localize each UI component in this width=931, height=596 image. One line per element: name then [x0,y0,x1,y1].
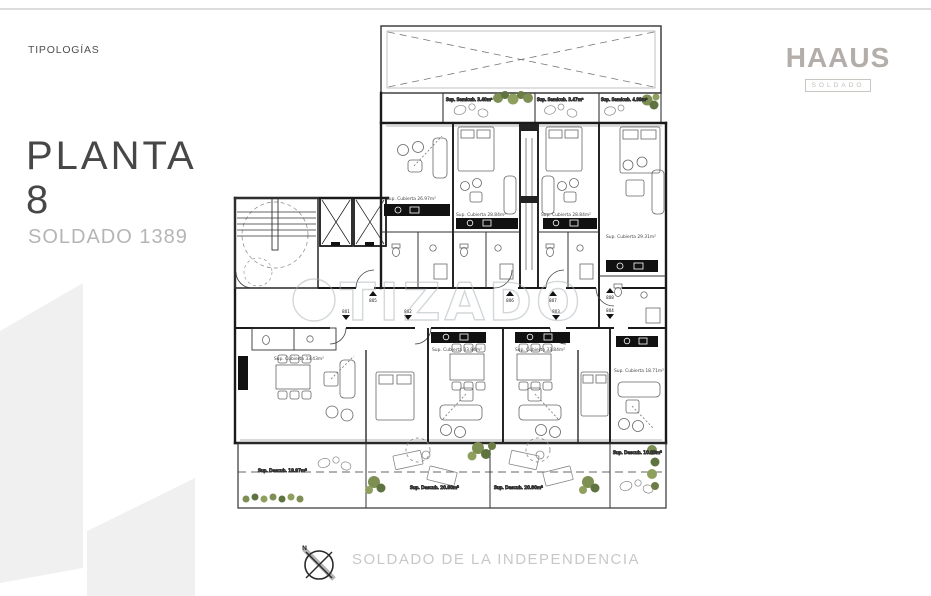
area-label: Sup. Cubierta 33.84m² [432,347,482,353]
stair-core [235,198,318,288]
sofa [519,405,561,420]
brand-badge: SOLDADO [805,79,872,92]
door-arc [236,272,252,288]
brand-logo: HAAUS [783,42,893,74]
brand-block: HAAUS SOLDADO [783,42,893,92]
area-label: Sup. Cubierta 18.71m² [614,368,664,374]
unit-center-right: Sup. Cubierta 33.84m² [515,332,608,438]
kitchen-counter [515,332,570,343]
area-label: Sup. Cubierta 29.31m² [606,234,656,240]
svg-text:808: 808 [606,295,614,300]
typology-sheet: TIPOLOGÍAS PLANTA 8 SOLDADO 1389 HAAUS S… [0,0,931,596]
svg-text:804: 804 [606,308,614,313]
studio-b: Sup. Cubierta 28.84m² [456,127,518,229]
area-label: Sup. Cubierta 28.84m² [541,212,591,218]
compass-north-label: N [302,545,307,552]
sofa [440,405,482,420]
decor-chevron-large [0,283,83,583]
dining-table [450,354,484,380]
unit-left: Sup. Cubierta 33.43m² [238,328,414,421]
plan-subtitle: SOLDADO 1389 [28,226,188,249]
kitchen-counter [431,332,486,343]
bed [620,127,660,173]
area-label: Sup. Semicub. 3.47m² [537,97,584,102]
decor-chevron-small [87,478,195,596]
unit-partitions-bottom [235,328,666,443]
studio-a: Sup. Cubierta 26.97m² [384,136,450,216]
watermark-text: TIZADO [340,273,584,333]
unit-center-left: Sup. Cubierta 33.84m² [431,332,486,438]
dining-table [517,354,551,380]
kitchen-counter [384,204,450,216]
area-label: Sup. Cubierta 26.97m² [386,196,436,202]
compass-icon: N [296,541,342,587]
studio-c: Sup. Cubierta 28.84m² [541,127,597,229]
dining-table [276,365,310,389]
area-label: Sup. Descub. 19.97m² [258,468,307,474]
section-label: TIPOLOGÍAS [28,44,100,56]
bed [581,372,608,416]
area-label: Sup. Cubierta 33.43m² [274,356,324,362]
area-label: Sup. Descub. 20.80m² [410,485,459,491]
plan-title-line2: 8 [26,178,197,222]
elevator-shaft [320,198,386,246]
balcony-top: Sup. Semicub. 3.40m² Sup. Semicub. 3.47m… [443,91,661,123]
floor-plan-drawing: Sup. Semicub. 3.40m² Sup. Semicub. 3.47m… [228,20,672,514]
watermark: TIZADO [293,273,584,333]
studio-d: Sup. Cubierta 29.31m² [606,127,664,272]
plan-title: PLANTA 8 [26,134,197,222]
sofa [652,170,664,214]
sofa [618,382,660,397]
area-label: Sup. Cubierta 33.84m² [515,347,565,353]
street-name: SOLDADO DE LA INDEPENDENCIA [352,551,640,568]
top-divider [0,8,931,10]
bed [546,127,582,171]
kitchen-counter [606,260,658,272]
service-shaft [521,124,537,270]
floor-plan: Sup. Semicub. 3.40m² Sup. Semicub. 3.47m… [228,20,672,514]
unit-right-studio: Sup. Cubierta 18.71m² [614,336,664,432]
sofa [542,176,554,214]
sofa [340,360,355,398]
area-label: Sup. Descub. 20.80m² [494,485,543,491]
area-label: Sup. Cubierta 28.84m² [456,212,506,218]
bed [376,372,414,420]
area-label: Sup. Semicub. 4.99m² [601,97,648,102]
sofa [504,176,516,214]
void-roof [381,26,661,93]
kitchen-counter [616,336,658,347]
kitchen-counter [238,356,248,390]
terraces: Sup. Descub. 19.97m² Sup. Descub. 20.80m… [238,438,666,508]
plan-title-line1: PLANTA [26,134,197,178]
stone-decor [453,104,624,119]
unit-marker: 804 [606,308,614,319]
sofa [433,138,447,178]
area-label: Sup. Descub. 10.03m² [613,450,662,456]
outer-walls [235,93,666,443]
area-label: Sup. Semicub. 3.40m² [446,97,493,102]
unit-marker: 808 [606,288,614,300]
bed [458,127,494,171]
